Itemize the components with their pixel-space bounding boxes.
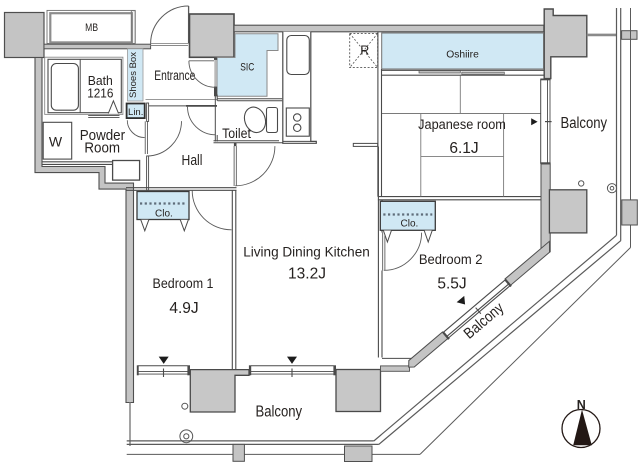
svg-text:4.9J: 4.9J [169,300,198,317]
svg-text:SIC: SIC [240,62,254,74]
svg-text:W: W [49,134,63,150]
svg-text:R: R [360,43,369,57]
svg-text:MB: MB [85,22,98,34]
svg-text:Bedroom 2: Bedroom 2 [419,252,483,267]
svg-text:5.5J: 5.5J [437,276,466,293]
svg-text:Lin.: Lin. [128,107,143,118]
svg-text:Entrance: Entrance [154,68,195,84]
svg-text:Toilet: Toilet [222,125,251,141]
svg-text:Bedroom 1: Bedroom 1 [153,275,214,291]
svg-text:N: N [577,398,586,412]
svg-text:Living Dining Kitchen: Living Dining Kitchen [243,244,370,259]
svg-text:Oshiire: Oshiire [446,49,479,60]
svg-text:Balcony: Balcony [561,115,608,132]
svg-text:1216: 1216 [87,86,113,101]
svg-text:6.1J: 6.1J [449,140,478,157]
svg-text:Room: Room [84,139,120,156]
svg-text:Clo.: Clo. [155,209,173,220]
svg-text:Hall: Hall [182,152,203,168]
svg-text:Clo.: Clo. [401,219,419,230]
svg-text:Shoes Box: Shoes Box [128,52,139,98]
svg-text:13.2J: 13.2J [288,266,326,283]
svg-text:Balcony: Balcony [256,403,303,420]
svg-text:Japanese room: Japanese room [418,117,506,133]
